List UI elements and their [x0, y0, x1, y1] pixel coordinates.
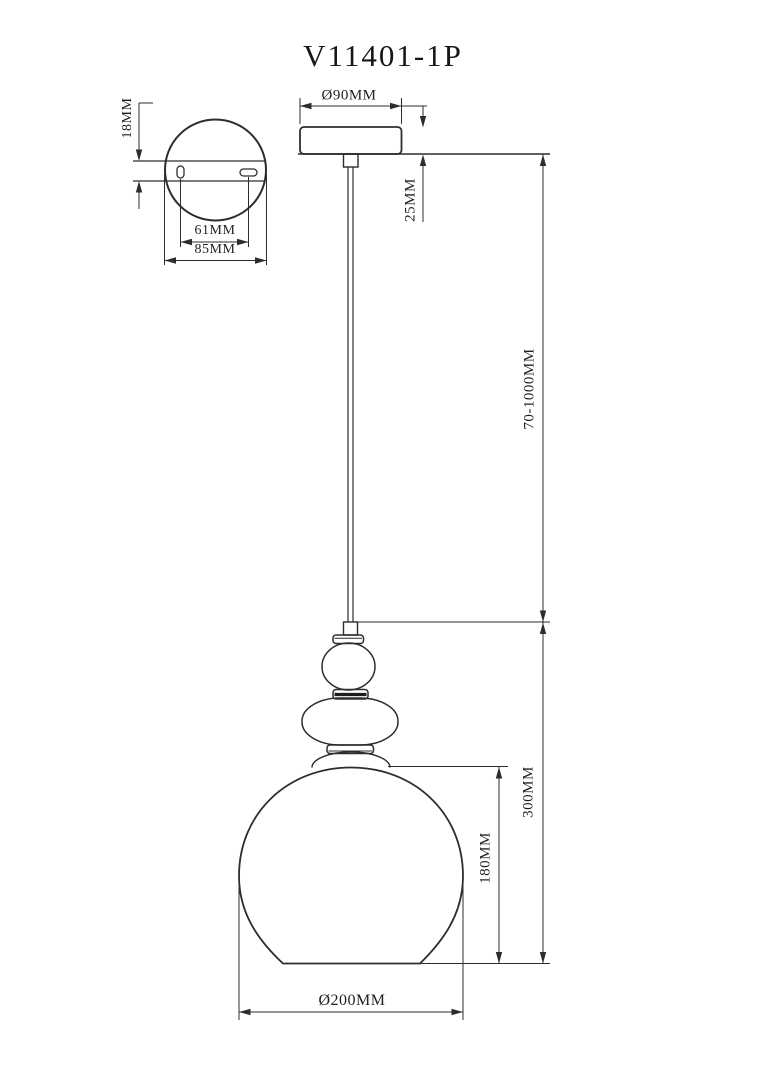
dim-label-canopy-diameter: Ø90MM: [321, 89, 376, 104]
lamp-body: [239, 622, 463, 964]
plate-dimensions: [136, 103, 267, 265]
dim-label-slot-spacing: 61MM: [195, 224, 236, 238]
dim-label-shade-diameter: Ø200MM: [318, 993, 385, 1009]
cord-grip-top: [344, 154, 359, 167]
bead-sphere: [322, 643, 375, 690]
canopy-body: [300, 127, 402, 154]
dim-label-suspension-length: 70-1000MM: [523, 348, 538, 429]
dim-label-plate-width: 85MM: [195, 243, 236, 257]
plate-slot-left: [177, 166, 184, 178]
dim-label-body-height: 300MM: [522, 766, 537, 818]
product-code-title: V11401-1P: [303, 38, 463, 74]
main-dimensions: [239, 154, 550, 1020]
mounting-plate-view: [133, 120, 266, 221]
dim-label-plate-thickness: 18MM: [121, 98, 135, 139]
cord-grip-lamp: [344, 622, 358, 635]
drawing-sheet: V11401-1P 18MM 61MM 85MM Ø90MM 25MM 70-1…: [0, 0, 763, 1080]
glass-shade-sphere: [239, 768, 463, 964]
drawing-canvas: [0, 0, 763, 1080]
canopy-assembly: [298, 127, 550, 622]
bead-oblate: [302, 698, 398, 745]
dim-label-shade-height: 180MM: [479, 832, 494, 884]
top-collar: [333, 635, 364, 644]
plate-slot-right: [240, 169, 257, 176]
dim-label-canopy-height: 25MM: [404, 178, 419, 222]
shade-neck-dome: [312, 752, 390, 768]
